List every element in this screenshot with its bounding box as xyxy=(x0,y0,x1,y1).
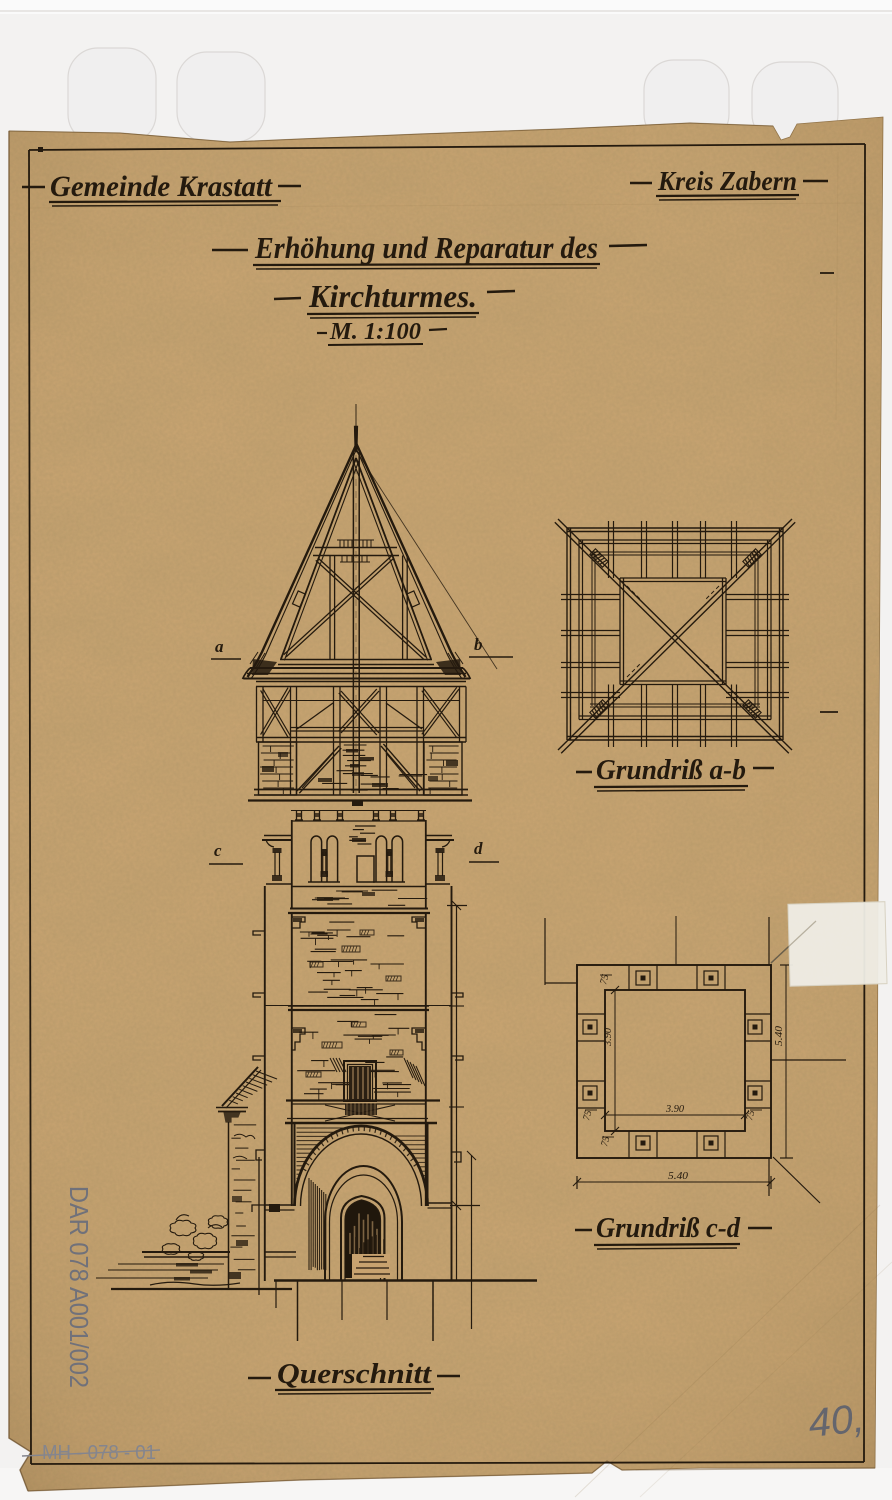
svg-text:Kirchturmes.: Kirchturmes. xyxy=(308,278,477,314)
svg-text:5.40: 5.40 xyxy=(773,1025,785,1046)
svg-text:40,: 40, xyxy=(806,1396,866,1446)
svg-text:Kreis Zabern: Kreis Zabern xyxy=(657,166,797,196)
svg-text:3.90: 3.90 xyxy=(602,1028,614,1047)
svg-text:3.90: 3.90 xyxy=(665,1103,684,1115)
svg-text:5.40: 5.40 xyxy=(668,1170,689,1182)
svg-text:b: b xyxy=(474,635,483,654)
svg-text:Grundriß a-b: Grundriß a-b xyxy=(596,754,746,786)
svg-text:M. 1:100: M. 1:100 xyxy=(329,319,421,345)
svg-text:Gemeinde Krastatt: Gemeinde Krastatt xyxy=(50,170,274,203)
svg-text:Querschnitt: Querschnitt xyxy=(277,1358,432,1390)
svg-text:Grundriß c-d: Grundriß c-d xyxy=(596,1212,740,1244)
svg-text:a: a xyxy=(215,637,224,656)
svg-text:DAR 078 A001/002: DAR 078 A001/002 xyxy=(64,1186,94,1388)
svg-text:Erhöhung und Reparatur des: Erhöhung und Reparatur des xyxy=(254,230,598,265)
svg-text:d: d xyxy=(474,839,483,858)
svg-text:c: c xyxy=(214,841,222,860)
